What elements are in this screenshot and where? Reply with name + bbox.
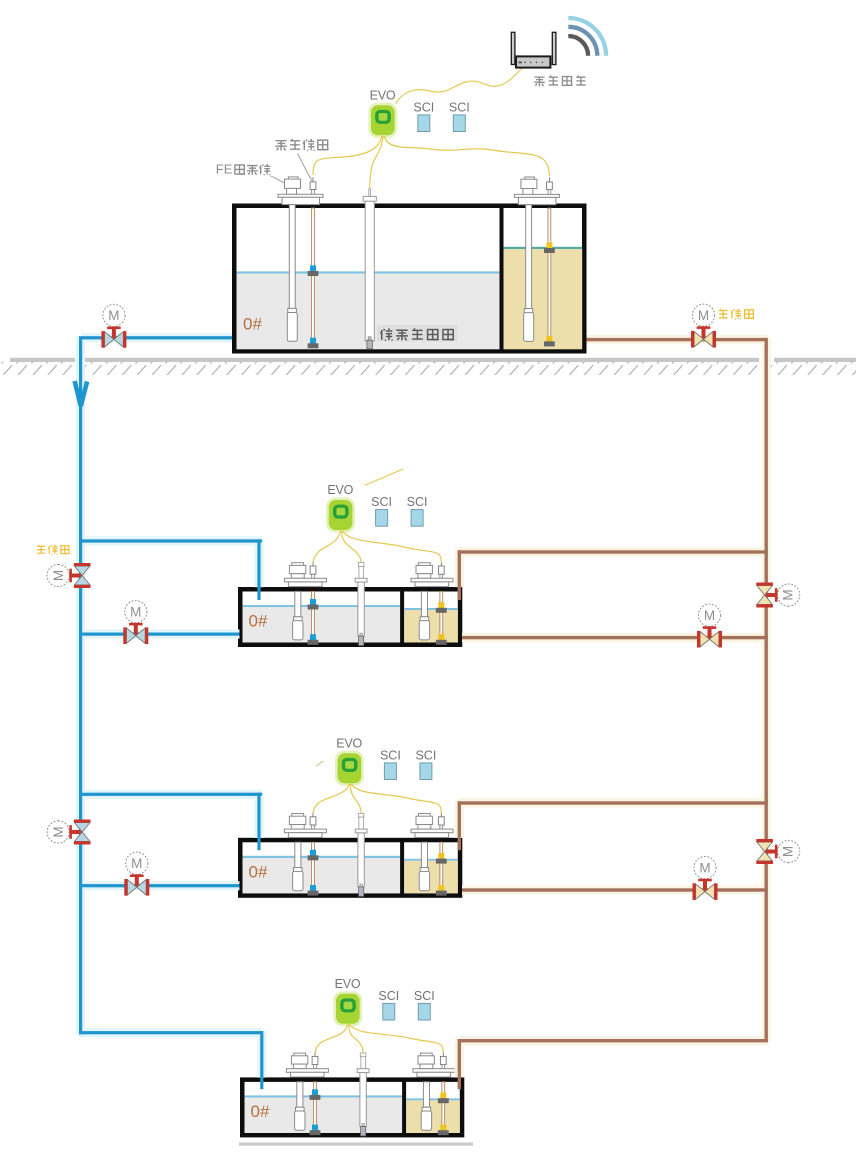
svg-text:0#: 0# — [243, 315, 262, 334]
svg-text:0#: 0# — [251, 1102, 270, 1121]
svg-text:FE: FE — [216, 162, 233, 177]
svg-text:0#: 0# — [249, 612, 268, 631]
svg-text:0#: 0# — [249, 862, 268, 881]
